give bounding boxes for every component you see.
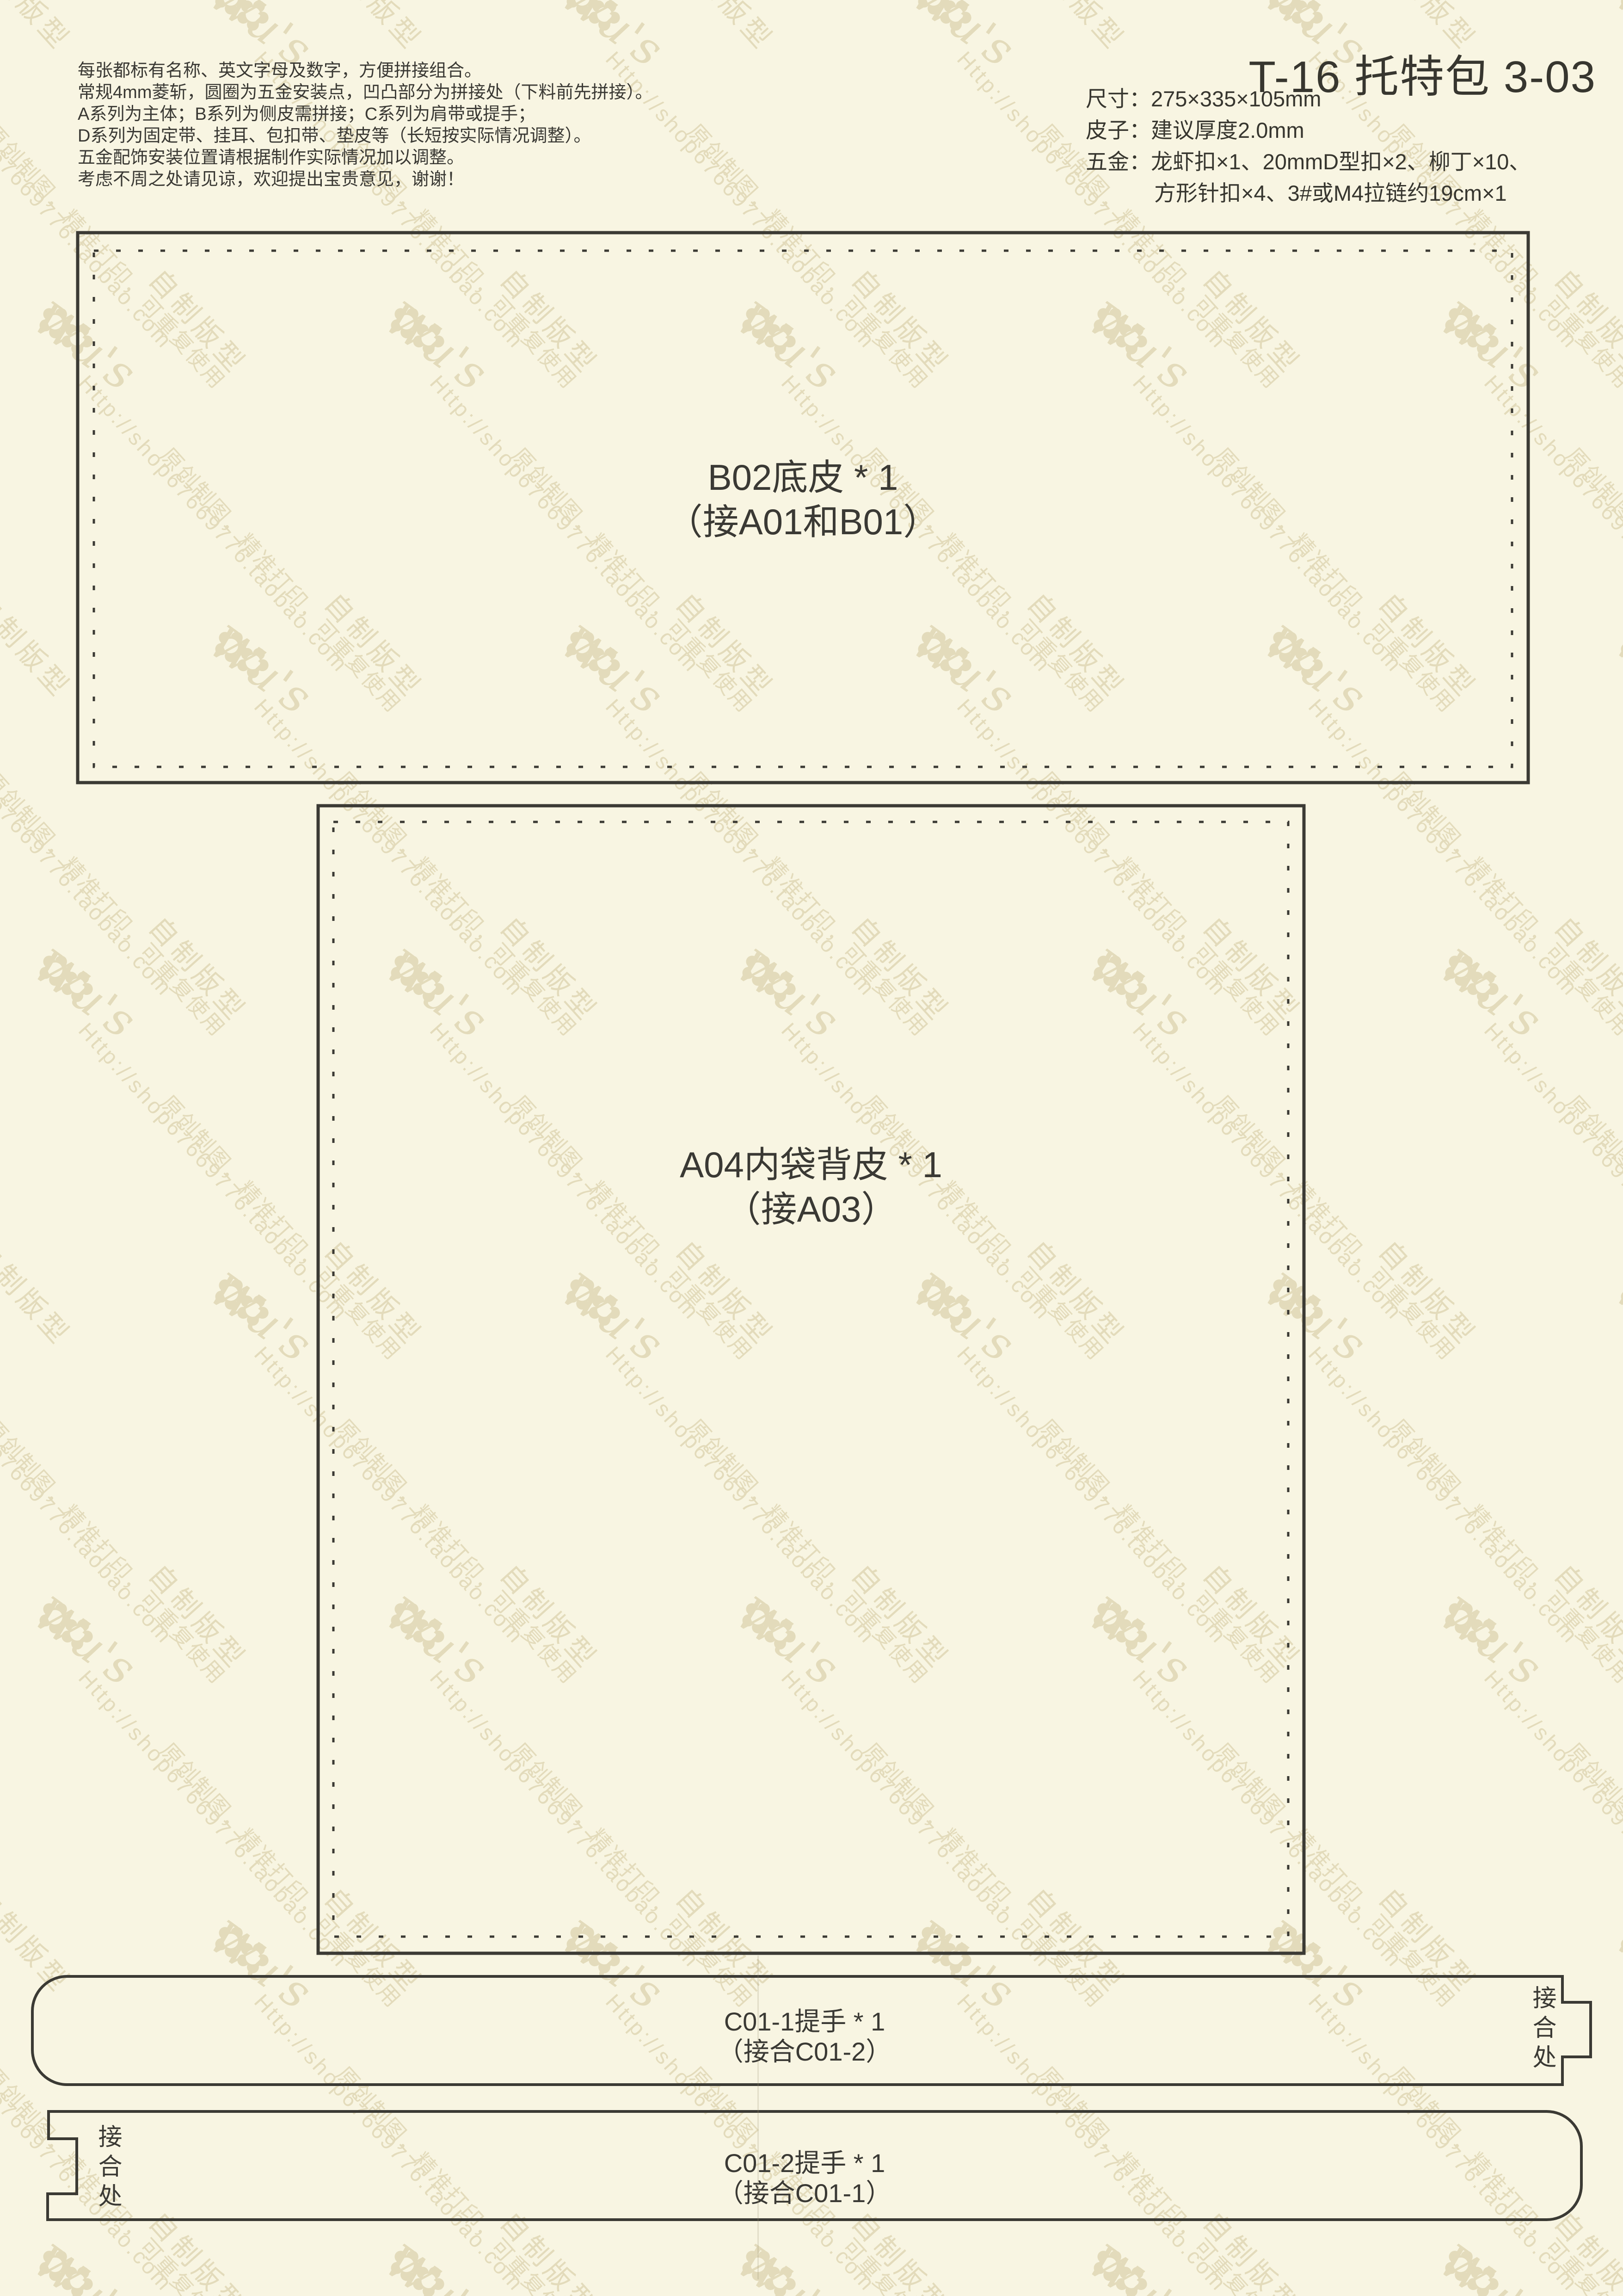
spec-hardware-cont: 方形针扣×4、3#或M4拉链约19cm×1 [1086, 178, 1531, 209]
instruction-line: 每张都标有名称、英文字母及数字，方便拼接组合。 [78, 60, 652, 82]
piece-c01-1-joint-label: 接合处 [1525, 1985, 1560, 2074]
instruction-line: 五金配饰安装位置请根据制作实际情况加以调整。 [78, 147, 652, 169]
piece-c01-2-name: C01-2提手 * 1 [724, 2148, 885, 2178]
spec-hardware: 五金：龙虾扣×1、20mmD型扣×2、柳丁×10、 [1086, 146, 1531, 178]
piece-a04-label: A04内袋背皮 * 1 （接A03） [318, 1142, 1304, 1231]
piece-b02-note: （接A01和B01） [78, 500, 1528, 544]
spec-size: 尺寸：275×335×105mm [1086, 83, 1531, 115]
pattern-sheet: ✿✿Wu's自制版型Http://shop67669776.taobao.com… [0, 0, 1623, 2296]
spec-leather: 皮子：建议厚度2.0mm [1086, 115, 1531, 146]
piece-b02-name: B02底皮 * 1 [708, 457, 898, 498]
piece-c01-1-note: （接合C01-2） [32, 2037, 1577, 2067]
instruction-line: D系列为固定带、挂耳、包扣带、垫皮等（长短按实际情况调整）。 [78, 125, 652, 147]
piece-a04-note: （接A03） [318, 1187, 1304, 1231]
piece-a04-name: A04内袋背皮 * 1 [680, 1144, 942, 1185]
piece-c01-1-name: C01-1提手 * 1 [724, 2007, 885, 2036]
instruction-line: A系列为主体；B系列为侧皮需拼接；C系列为肩带或提手； [78, 104, 652, 125]
piece-c01-1-label: C01-1提手 * 1 （接合C01-2） [32, 2006, 1577, 2067]
piece-c01-2-note: （接合C01-1） [32, 2178, 1577, 2208]
piece-a04-outline [318, 806, 1304, 1953]
instruction-line: 常规4mm菱斩，圆圈为五金安装点，凹凸部分为拼接处（下料前先拼接）。 [78, 82, 652, 104]
piece-c01-2-joint-label: 接合处 [91, 2124, 125, 2213]
piece-a04-stitch-line [333, 822, 1288, 1937]
specs-block: 尺寸：275×335×105mm 皮子：建议厚度2.0mm 五金：龙虾扣×1、2… [1086, 83, 1531, 209]
instruction-line: 考虑不周之处请见谅，欢迎提出宝贵意见，谢谢！ [78, 169, 652, 191]
instructions-block: 每张都标有名称、英文字母及数字，方便拼接组合。 常规4mm菱斩，圆圈为五金安装点… [78, 60, 652, 191]
piece-b02-label: B02底皮 * 1 （接A01和B01） [78, 455, 1528, 544]
piece-c01-2-label: C01-2提手 * 1 （接合C01-1） [32, 2148, 1577, 2208]
scan-crease [757, 1956, 759, 2279]
